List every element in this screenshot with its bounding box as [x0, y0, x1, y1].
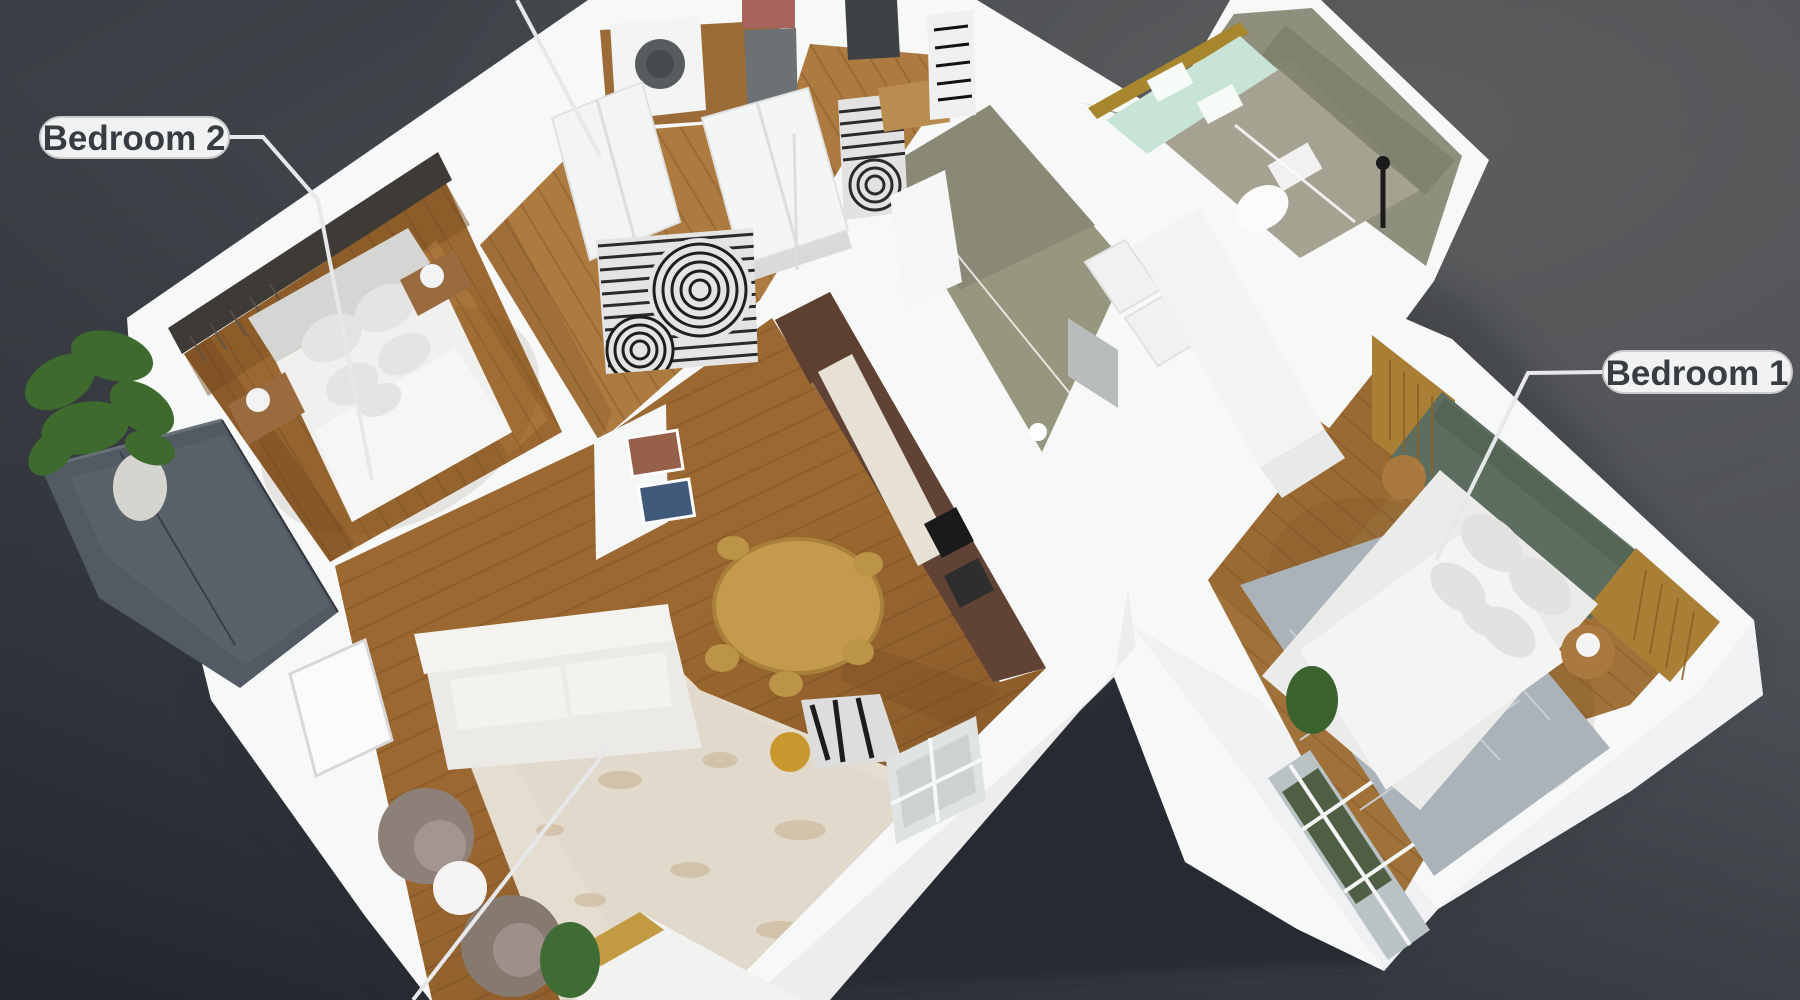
- svg-text:Bedroom 1: Bedroom 1: [1606, 354, 1789, 393]
- svg-text:Bedroom 2: Bedroom 2: [43, 119, 226, 158]
